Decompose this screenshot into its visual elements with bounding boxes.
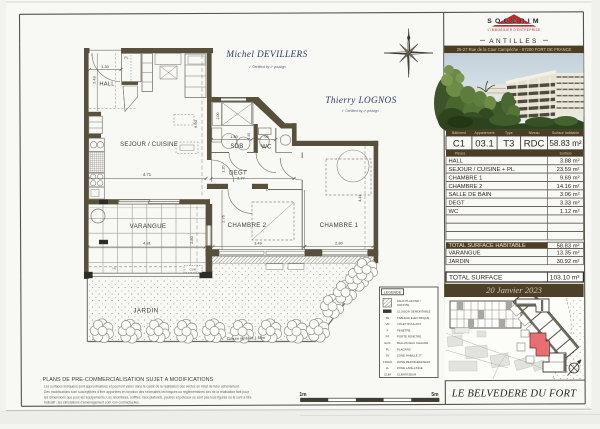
svg-text:JARDIN: JARDIN	[133, 308, 158, 315]
svg-text:3.06 m²: 3.06 m²	[560, 192, 580, 198]
svg-text:C1: C1	[453, 138, 465, 149]
svg-text:SEJOUR / CUISINE: SEJOUR / CUISINE	[120, 141, 178, 148]
svg-text:VOLET ROULANT: VOLET ROULANT	[397, 322, 421, 326]
svg-text:VARANGUE: VARANGUE	[130, 223, 167, 230]
svg-text:F: F	[387, 328, 389, 332]
svg-text:13.35 m²: 13.35 m²	[557, 251, 580, 257]
svg-text:CHAMBRE 2: CHAMBRE 2	[449, 184, 483, 190]
svg-text:TE: TE	[386, 316, 390, 320]
svg-text:SOGERIM: SOGERIM	[487, 18, 542, 25]
svg-text:Surface habitable: Surface habitable	[552, 131, 579, 135]
svg-text:CHAMBRE 1: CHAMBRE 1	[449, 175, 483, 181]
svg-text:FRIGO: FRIGO	[383, 360, 393, 364]
svg-text:CHAMBRE 2: CHAMBRE 2	[228, 222, 267, 229]
svg-text:14.16 m²: 14.16 m²	[557, 184, 580, 190]
svg-text:5m: 5m	[431, 392, 439, 398]
svg-text:1.30: 1.30	[101, 64, 110, 69]
svg-text:1.80: 1.80	[230, 135, 237, 139]
svg-text:WC: WC	[449, 209, 459, 215]
svg-text:25-27 Rue de la Cour Campêche: 25-27 Rue de la Cour Campêche - 97200 FO…	[457, 47, 572, 52]
svg-text:Surface: Surface	[559, 152, 571, 156]
svg-text:4.71: 4.71	[143, 172, 152, 177]
svg-text:23.59 m²: 23.59 m²	[557, 167, 580, 173]
svg-text:CUM: CUM	[190, 268, 197, 272]
svg-text:VARANGUE: VARANGUE	[449, 251, 481, 257]
svg-text:Michel DEVILLERS: Michel DEVILLERS	[225, 49, 307, 59]
svg-text:Appartement: Appartement	[474, 131, 494, 135]
svg-text:HALL: HALL	[99, 82, 115, 88]
svg-text:4.81: 4.81	[143, 241, 152, 246]
svg-text:Les surfaces indiquées sont ap: Les surfaces indiquées sont approximativ…	[44, 385, 240, 389]
svg-text:PF: PF	[386, 335, 390, 339]
svg-text:DEGT: DEGT	[449, 200, 466, 206]
svg-text:✓ Certified by 𝒮 yousign: ✓ Certified by 𝒮 yousign	[248, 65, 285, 69]
svg-text:BALLON EAU CHAUDE: BALLON EAU CHAUDE	[397, 341, 428, 345]
svg-text:CLIM: CLIM	[384, 373, 391, 377]
svg-text:3.88 m²: 3.88 m²	[560, 159, 580, 165]
svg-text:HALL: HALL	[449, 159, 464, 165]
svg-text:✓ Certified by 𝒮 yousign: ✓ Certified by 𝒮 yousign	[341, 109, 378, 113]
svg-text:CLOISON DEMONTABLE: CLOISON DEMONTABLE	[397, 310, 431, 314]
svg-text:03.1: 03.1	[475, 138, 494, 149]
svg-text:LE BELVEDERE DU FORT: LE BELVEDERE DU FORT	[451, 388, 577, 399]
svg-text:Pièces: Pièces	[455, 152, 466, 156]
svg-text:LEGENDE: LEGENDE	[384, 291, 402, 295]
svg-text:VR: VR	[385, 322, 389, 326]
svg-text:4.41: 4.41	[357, 193, 362, 202]
svg-text:FENETRE: FENETRE	[397, 328, 411, 332]
svg-text:TABLEAU ELECTRIQUE: TABLEAU ELECTRIQUE	[397, 316, 429, 320]
svg-text:JARDIN: JARDIN	[449, 259, 470, 265]
svg-text:Bâtiment: Bâtiment	[452, 131, 466, 135]
svg-text:PLACARD: PLACARD	[397, 347, 411, 351]
svg-text:20 Janvier 2023: 20 Janvier 2023	[486, 285, 542, 295]
svg-text:Des modifications sont suscept: Des modifications sont susceptibles d'êt…	[44, 390, 250, 394]
svg-text:1m: 1m	[299, 392, 307, 398]
svg-text:90: 90	[264, 135, 268, 139]
svg-text:30.92 m²: 30.92 m²	[557, 259, 580, 265]
svg-text:SOFFITE: SOFFITE	[397, 303, 409, 307]
svg-text:3.49: 3.49	[254, 241, 263, 246]
svg-text:2.80: 2.80	[335, 241, 344, 246]
svg-text:6.90: 6.90	[193, 119, 198, 128]
svg-text:CLIMATISEUR: CLIMATISEUR	[397, 373, 416, 377]
svg-text:les dimensions que pour les éq: les dimensions que pour les équipements.…	[44, 395, 252, 399]
svg-text:ANTILLES: ANTILLES	[489, 38, 538, 45]
svg-text:58.83 m²: 58.83 m²	[549, 139, 582, 148]
svg-text:Type: Type	[505, 131, 513, 135]
svg-text:2.00: 2.00	[216, 113, 220, 120]
svg-text:2.43: 2.43	[92, 75, 97, 84]
svg-text:ECS: ECS	[385, 341, 391, 345]
svg-text:PL: PL	[386, 347, 390, 351]
svg-text:1.20: 1.20	[222, 166, 226, 173]
svg-text:2.77: 2.77	[237, 176, 244, 180]
svg-text:TOTAL SURFACE: TOTAL SURFACE	[449, 274, 503, 281]
svg-text:RDC: RDC	[524, 138, 545, 149]
svg-text:WC: WC	[261, 145, 272, 151]
svg-text:L'IMMOBILIER D'ENTREPRISE: L'IMMOBILIER D'ENTREPRISE	[488, 28, 541, 32]
svg-text:2.76: 2.76	[222, 215, 226, 222]
svg-text:1.12 m²: 1.12 m²	[560, 209, 580, 215]
svg-text:SEJOUR / CUISINE + PL.: SEJOUR / CUISINE + PL.	[449, 167, 517, 173]
svg-text:VR: VR	[112, 267, 116, 271]
svg-text:ZONE LAVE-LINGE: ZONE LAVE-LINGE	[397, 366, 423, 370]
svg-text:PL: PL	[124, 56, 128, 60]
svg-text:T3: T3	[503, 138, 514, 149]
svg-text:ZONE REFRIGERATEUR: ZONE REFRIGERATEUR	[397, 360, 430, 364]
svg-text:TOTAL SURFACE HABITABLE: TOTAL SURFACE HABITABLE	[449, 243, 526, 249]
svg-text:103.10 m²: 103.10 m²	[550, 274, 580, 281]
svg-text:Thierry LOGNOS: Thierry LOGNOS	[325, 95, 396, 105]
svg-text:SALLE DE BAIN: SALLE DE BAIN	[449, 192, 492, 198]
svg-text:2.80: 2.80	[189, 235, 194, 244]
svg-text:9.69 m²: 9.69 m²	[560, 175, 580, 181]
svg-text:LL: LL	[386, 366, 390, 370]
svg-text:ZONE HABILLE JT: ZONE HABILLE JT	[397, 354, 422, 358]
svg-text:PLANS DE PRE-COMMERCIALISATION: PLANS DE PRE-COMMERCIALISATION SUJET A M…	[43, 377, 214, 383]
svg-text:SDB: SDB	[230, 144, 243, 150]
svg-text:1.90: 1.90	[247, 133, 251, 139]
svg-text:indicatif ; les simulations d': indicatif ; les simulations d'aménagemen…	[44, 401, 140, 405]
svg-text:Niveau: Niveau	[529, 131, 540, 135]
svg-text:CHAMBRE 1: CHAMBRE 1	[320, 222, 359, 229]
svg-text:SV: SV	[386, 354, 390, 358]
svg-text:PORTE FENETRE: PORTE FENETRE	[397, 335, 421, 339]
svg-text:3.33 m²: 3.33 m²	[560, 200, 580, 206]
